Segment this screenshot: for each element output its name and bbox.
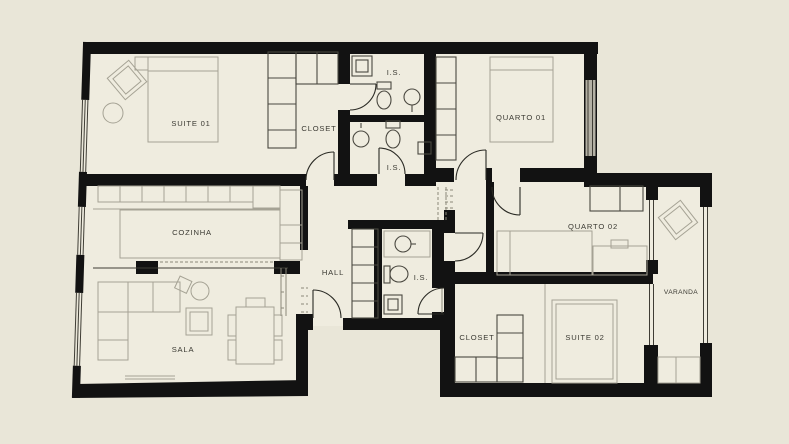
room-label-varanda: VARANDA: [664, 289, 698, 296]
room-label-closet-1: CLOSET: [301, 124, 336, 133]
room-label-sala: SALA: [172, 345, 195, 354]
room-label-quarto-01: QUARTO 01: [496, 113, 546, 122]
room-label-suite-01: SUITE 01: [171, 119, 210, 128]
floor-plan-svg: SUITE 01 CLOSET I.S. QUARTO 01 I.S. COZI…: [0, 0, 789, 444]
floor-plan-canvas: SUITE 01 CLOSET I.S. QUARTO 01 I.S. COZI…: [0, 0, 789, 444]
room-label-hall: HALL: [322, 268, 344, 277]
room-label-quarto-02: QUARTO 02: [568, 222, 618, 231]
room-label-is-3: I.S.: [414, 273, 429, 282]
room-label-suite-02: SUITE 02: [565, 333, 604, 342]
room-label-cozinha: COZINHA: [172, 228, 212, 237]
room-label-is-2: I.S.: [387, 163, 402, 172]
room-label-closet-2: CLOSET: [459, 333, 494, 342]
room-label-is-1: I.S.: [387, 68, 402, 77]
